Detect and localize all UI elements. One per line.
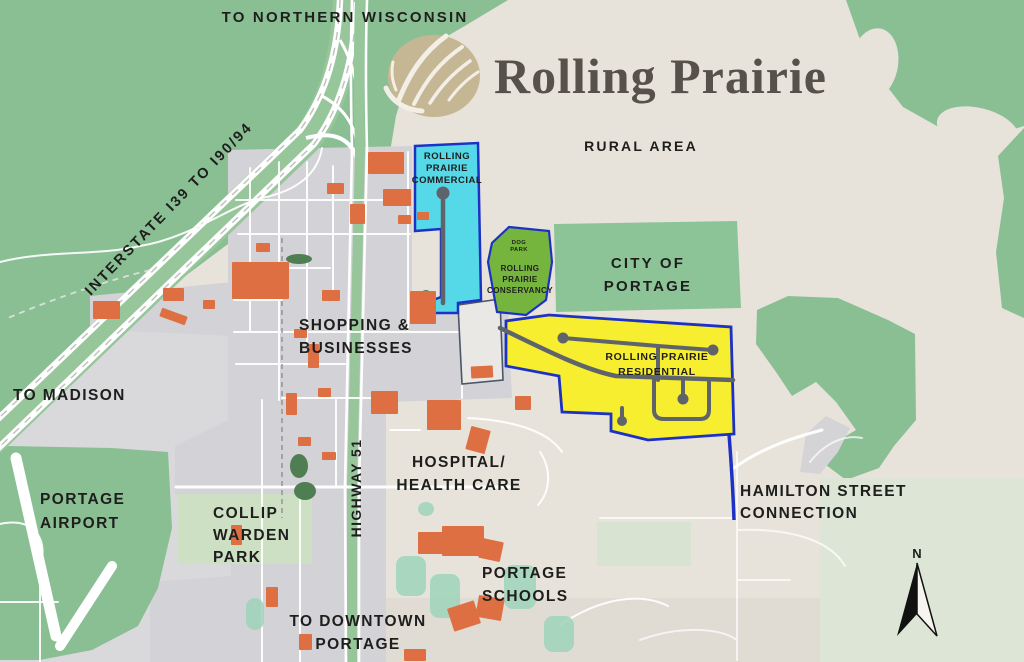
building xyxy=(383,189,411,206)
building xyxy=(286,393,297,415)
rolling-prairie-map: Rolling Prairie TO NORTHERN WISCONSIN RU… xyxy=(0,0,1024,662)
building xyxy=(299,634,312,650)
label-downtown-1: TO DOWNTOWN xyxy=(289,613,426,630)
building xyxy=(322,452,336,460)
tree-cluster xyxy=(286,254,312,264)
building xyxy=(93,301,120,319)
sports-field xyxy=(544,616,574,652)
commercial-cul-de-sac xyxy=(437,187,450,200)
building xyxy=(266,587,278,607)
building xyxy=(404,649,426,661)
building xyxy=(368,152,404,174)
label-residential-2: RESIDENTIAL xyxy=(618,366,696,378)
label-commercial-1: ROLLING xyxy=(424,151,470,162)
label-hamilton-1: HAMILTON STREET xyxy=(740,483,907,500)
building xyxy=(410,291,436,324)
label-commercial-2: PRAIRIE xyxy=(426,163,468,174)
tree-cluster xyxy=(290,454,308,478)
label-dog-park-1: DOG xyxy=(512,240,526,246)
label-hospital-1: HOSPITAL/ xyxy=(412,454,506,471)
label-collip-3: PARK xyxy=(213,549,261,566)
label-airport-2: AIRPORT xyxy=(40,515,120,532)
map-title: Rolling Prairie xyxy=(494,48,827,104)
building xyxy=(442,526,484,556)
building xyxy=(327,183,344,194)
building xyxy=(418,532,444,554)
label-to-northern-wisconsin: TO NORTHERN WISCONSIN xyxy=(222,9,469,26)
label-collip-2: WARDEN xyxy=(213,527,290,544)
label-shopping-1: SHOPPING & xyxy=(299,317,410,334)
cul-de-sac-3 xyxy=(678,394,689,405)
cul-de-sac-1 xyxy=(558,333,569,344)
building xyxy=(398,215,411,224)
cul-de-sac-2 xyxy=(708,345,719,356)
building xyxy=(203,300,215,309)
sports-field xyxy=(246,598,264,630)
building xyxy=(163,288,184,301)
label-city-of-portage-2: PORTAGE xyxy=(604,278,692,295)
label-conservancy-2: PRAIRIE xyxy=(502,275,538,284)
building xyxy=(232,262,289,299)
building xyxy=(298,437,311,446)
label-collip-1: COLLIP xyxy=(213,505,278,522)
map-canvas: Rolling Prairie TO NORTHERN WISCONSIN RU… xyxy=(0,0,1024,662)
label-hamilton-2: CONNECTION xyxy=(740,505,858,522)
building xyxy=(322,290,340,301)
building xyxy=(417,212,429,220)
building xyxy=(515,396,531,410)
sports-field xyxy=(396,556,426,596)
building xyxy=(350,204,365,224)
building xyxy=(318,388,331,397)
building xyxy=(427,400,461,430)
building xyxy=(471,365,494,378)
tree-cluster xyxy=(294,482,316,500)
label-downtown-2: PORTAGE xyxy=(315,636,400,653)
label-schools-1: PORTAGE xyxy=(482,565,567,582)
building xyxy=(371,391,398,414)
compass-north-label: N xyxy=(912,546,921,561)
label-conservancy-3: CONSERVANCY xyxy=(487,286,553,295)
label-airport-1: PORTAGE xyxy=(40,491,125,508)
label-hospital-2: HEALTH CARE xyxy=(396,477,521,494)
cul-de-sac-4 xyxy=(617,416,627,426)
sports-field xyxy=(418,502,434,516)
label-city-of-portage-1: CITY OF xyxy=(611,255,685,272)
south-light-green xyxy=(597,522,691,566)
label-conservancy-1: ROLLING xyxy=(501,264,540,273)
label-shopping-2: BUSINESSES xyxy=(299,340,413,357)
label-highway-51: HIGHWAY 51 xyxy=(348,439,364,538)
label-dog-park-2: PARK xyxy=(510,247,528,253)
label-schools-2: SCHOOLS xyxy=(482,588,568,605)
label-commercial-3: COMMERCIAL xyxy=(412,175,482,186)
label-rural-area: RURAL AREA xyxy=(584,138,698,154)
label-to-madison: TO MADISON xyxy=(13,387,126,404)
label-residential-1: ROLLING PRAIRIE xyxy=(605,351,708,363)
building xyxy=(256,243,270,252)
